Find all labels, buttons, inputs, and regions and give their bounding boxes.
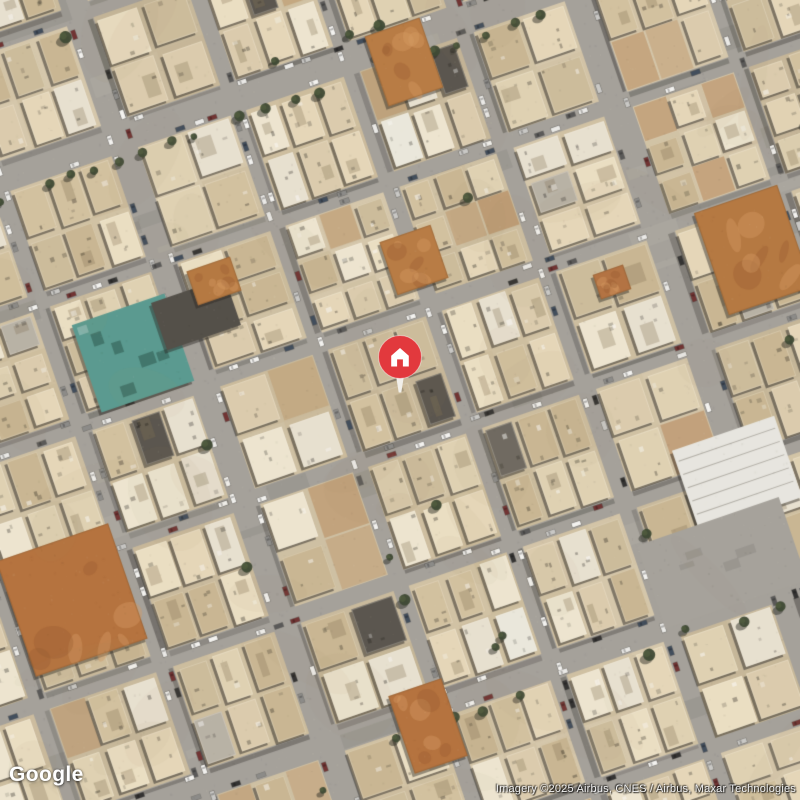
marker-pin-graphic	[376, 333, 424, 395]
property-marker[interactable]	[376, 333, 424, 395]
google-logo[interactable]: Google	[9, 763, 84, 787]
map-viewport: Google Imagery ©2025 Airbus, CNES / Airb…	[0, 0, 800, 800]
satellite-imagery[interactable]	[0, 0, 800, 800]
imagery-attribution: Imagery ©2025 Airbus, CNES / Airbus, Max…	[496, 783, 796, 795]
